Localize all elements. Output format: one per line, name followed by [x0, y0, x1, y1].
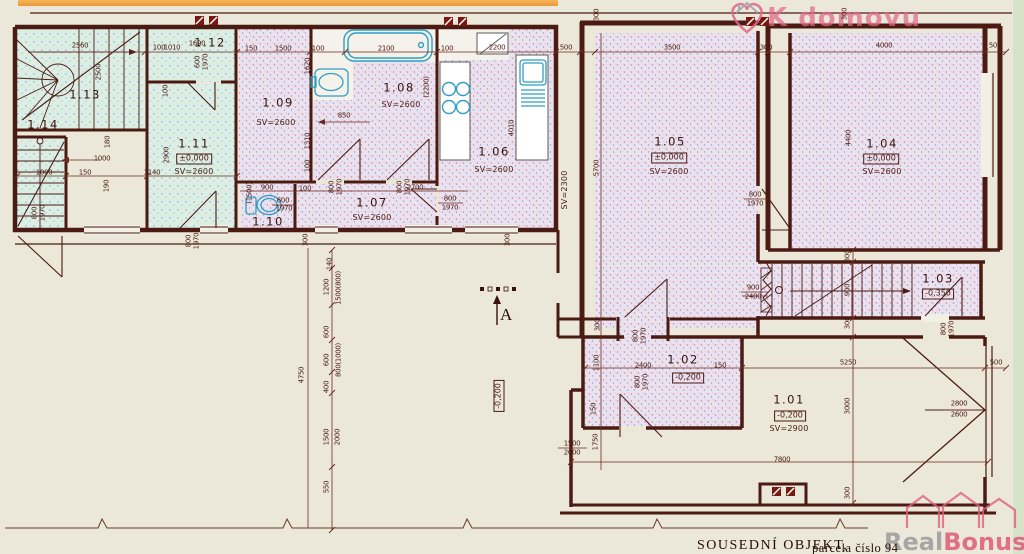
dimension-label: 1500(800)	[336, 271, 343, 305]
room-label: 1.06	[478, 146, 510, 158]
ceiling-height-label: SV=2900	[769, 425, 808, 433]
room-label: 1.13	[69, 89, 101, 101]
dimension-label: 800	[749, 192, 761, 199]
dimension-label: 1500	[324, 429, 331, 446]
realbonus-bonus: Bonus	[943, 528, 1024, 554]
dimension-label: (1500)	[247, 182, 254, 203]
dimension-label: 4010	[509, 120, 516, 137]
dimension-label: 150	[79, 170, 91, 177]
dimension-label: 5700	[594, 160, 601, 177]
dimension-label: 100	[299, 186, 311, 193]
dimension-label: 180	[105, 136, 112, 148]
dimension-label: 300	[845, 487, 852, 499]
dimension-label: 300	[845, 317, 852, 329]
dimension-label: 1690	[189, 41, 206, 48]
houses-icon	[903, 490, 1023, 530]
dimension-label: 800	[941, 323, 948, 335]
level-badge: -0,200	[774, 411, 806, 422]
dimension-label: 2400	[635, 363, 652, 370]
dimension-label: 300	[842, 8, 849, 20]
dimension-label: 1000	[36, 170, 53, 177]
dimension-label: 7800	[774, 457, 791, 464]
dimension-label: 900	[747, 285, 759, 292]
dimension-label: 1970	[949, 321, 956, 338]
ceiling-height-label: SV=2600	[256, 119, 295, 127]
floor-plan-page: K domovu RealBonus.cz SOUSEDNÍ OBJEKT, p…	[0, 0, 1024, 554]
room-label: 1.08	[383, 82, 415, 94]
dimension-label: 800(1000)	[336, 343, 343, 377]
dimension-label: 2500	[96, 64, 103, 81]
ceiling-height-label: SV=2600	[352, 214, 391, 222]
room-label: 1.09	[262, 97, 294, 109]
dimension-label: 2800	[951, 401, 968, 408]
dimension-label: 1970	[643, 374, 650, 391]
dimension-label: 900	[845, 284, 852, 296]
dimension-label: 400	[324, 381, 331, 393]
dimension-label: 800	[397, 181, 404, 193]
dimension-label: 100	[163, 85, 170, 97]
level-badge: -0,200	[494, 380, 505, 412]
dimension-label: 140	[327, 258, 334, 270]
dimension-label: 1620	[305, 58, 312, 75]
property-boundary-line	[5, 519, 868, 528]
room-label: 1.01	[773, 394, 805, 406]
dimension-label: 1970	[747, 201, 764, 208]
level-badge: ±0,000	[176, 154, 212, 165]
dimension-label: 900	[261, 185, 273, 192]
ceiling-height-label: SV=2600	[474, 166, 513, 174]
dimension-label: 600	[324, 326, 331, 338]
dimension-label: 600	[195, 56, 202, 68]
dimension-label: 300	[845, 250, 852, 262]
dimension-label: 2100	[378, 46, 395, 53]
dimension-label: 1750	[593, 434, 600, 451]
dimension-label: 4750	[299, 367, 306, 384]
dimension-label: 1310	[305, 133, 312, 150]
dimension-label: (2200)	[424, 76, 431, 97]
level-badge: -0,200	[672, 373, 704, 384]
level-badge: ±0,000	[863, 154, 899, 165]
dimension-label: 300	[303, 234, 310, 246]
dimension-label: 100	[305, 160, 312, 172]
room-label: 1.02	[667, 354, 699, 366]
dimension-label: 850	[338, 113, 350, 120]
room-label: 1.04	[866, 138, 898, 150]
dimension-label: 150	[591, 403, 598, 415]
ceiling-height-label: SV=2600	[174, 168, 213, 176]
room-label: 1.03	[922, 273, 954, 285]
room-label: 1.07	[356, 197, 388, 209]
dimension-label: 1500	[275, 46, 292, 53]
dimension-label: 1970	[641, 328, 648, 345]
dimension-label: 600	[277, 198, 289, 205]
dimension-label: 2200	[489, 45, 506, 52]
dimension-label: 300	[760, 45, 772, 52]
dimension-label: 190	[104, 180, 111, 192]
room-label: 1.05	[654, 136, 686, 148]
dimension-label: 1970	[337, 179, 344, 196]
dimension-label: 100	[441, 46, 453, 53]
dimension-label: 800	[444, 196, 456, 203]
dimension-label: 3500	[664, 45, 681, 52]
dimension-label: 800	[32, 207, 39, 219]
dimension-label: 300	[594, 9, 601, 21]
dimension-label: 800	[329, 181, 336, 193]
ceiling-height-label: SV=2600	[649, 168, 688, 176]
dimension-label: 1000	[94, 156, 111, 163]
room-label: 1.14	[27, 119, 59, 131]
level-badge: -0,350	[922, 289, 954, 300]
dimension-label: 1970	[203, 54, 210, 71]
dimension-label: 1970	[40, 205, 47, 222]
realbonus-watermark: RealBonus.cz	[884, 528, 1024, 554]
level-badge: ±0,000	[651, 153, 687, 164]
dimension-label: 1200	[324, 279, 331, 296]
dimension-label: 3140	[144, 170, 161, 177]
ceiling-height-label: SV=2600	[862, 168, 901, 176]
parcel-number-label: parcela číslo 94	[812, 541, 898, 554]
dimension-label: 500	[989, 43, 1001, 50]
dimension-label: 500	[560, 45, 572, 52]
dimension-label: 1970	[442, 205, 459, 212]
dimension-label: 800	[186, 235, 193, 247]
heart-house-icon	[724, 0, 770, 36]
dimension-label: 1970	[276, 206, 293, 213]
dimension-label: 1500	[564, 441, 581, 448]
room-label: 1.11	[178, 138, 210, 150]
floor-plan-linework	[0, 0, 1024, 554]
dimension-label: 2000	[564, 450, 581, 457]
dimension-label: 1100	[594, 355, 601, 372]
dimension-label: 150	[714, 363, 726, 370]
dimension-label: 5250	[840, 360, 857, 367]
dimension-label: 2900	[164, 147, 171, 164]
room-label: 1.10	[252, 216, 284, 228]
dimension-label: SV=2300	[561, 170, 569, 209]
dimension-label: 3000	[845, 398, 852, 415]
dimension-label: 500	[990, 360, 1002, 367]
section-a-label: A	[500, 305, 512, 325]
dimension-label: 2560	[72, 43, 89, 50]
dimension-label: 600	[324, 354, 331, 366]
dimension-label: 550	[324, 481, 331, 493]
dimension-label: 1970	[405, 179, 412, 196]
dimension-label: 2400	[745, 294, 762, 301]
dimension-label: 800	[635, 376, 642, 388]
dimension-label: 100	[312, 46, 324, 53]
dimension-label: 4000	[876, 43, 893, 50]
dimension-label: 300	[505, 234, 512, 246]
dimension-label: 150	[245, 46, 257, 53]
dimension-label: 2000	[335, 429, 342, 446]
dimension-label: 2600	[951, 412, 968, 419]
dimension-label: 300	[595, 319, 602, 331]
dimension-label: 800	[633, 330, 640, 342]
dimension-label: 1010	[164, 45, 181, 52]
dimension-label: 1970	[194, 233, 201, 250]
ceiling-height-label: SV=2600	[381, 101, 420, 109]
dimension-label: 4400	[846, 130, 853, 147]
